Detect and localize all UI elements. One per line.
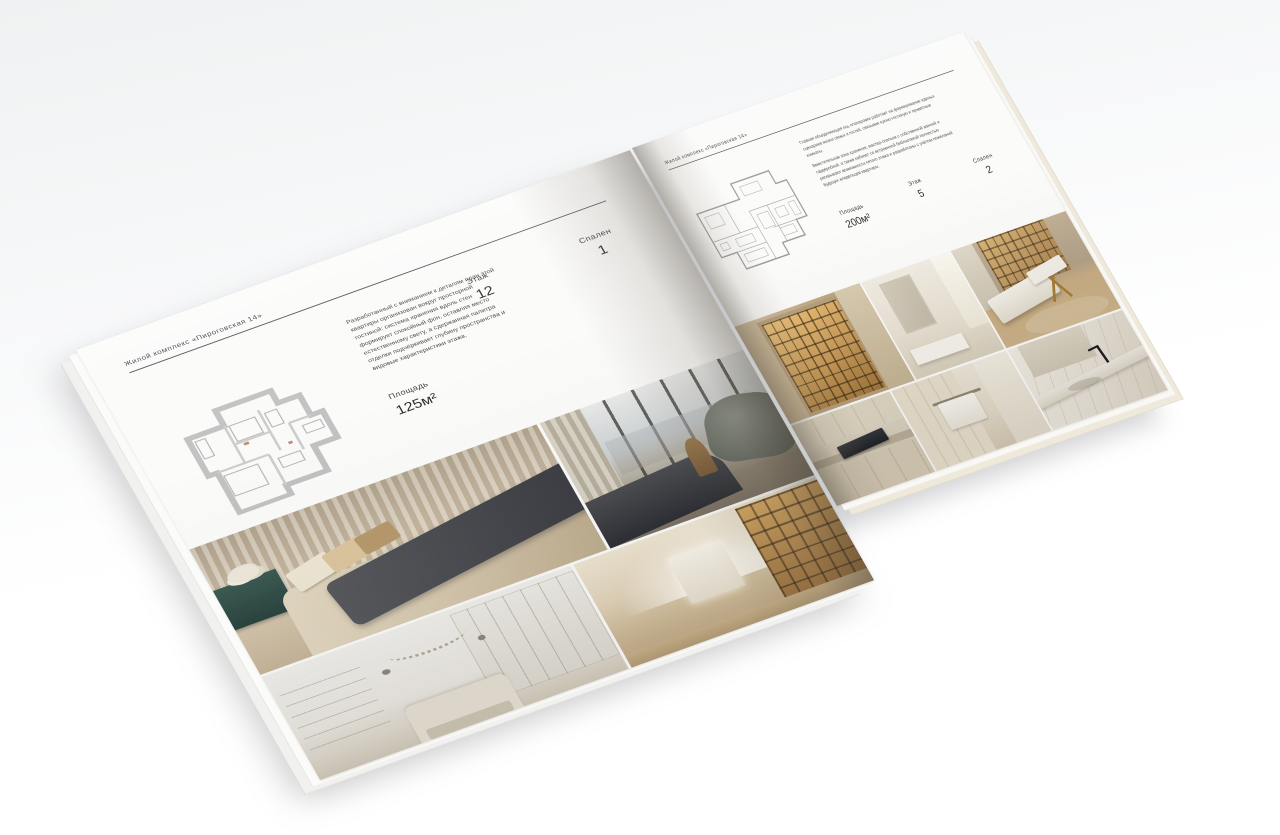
scene-background: Жилой комплекс «Пироговская 14» Разработ…	[0, 0, 1280, 835]
stat-area-right: Площадь 200м²	[838, 202, 874, 231]
sconce	[381, 669, 391, 676]
faucet	[1096, 346, 1109, 363]
floor-label: Этаж	[906, 176, 922, 187]
stat-bedrooms-left: Спален 1	[577, 226, 622, 262]
stat-bedrooms-right: Спален 2	[971, 152, 1001, 179]
floor-value: 5	[912, 186, 931, 201]
stat-area-left: Площадь 125м²	[387, 379, 441, 418]
mirror	[879, 274, 938, 334]
bedrooms-value: 2	[977, 161, 1002, 178]
wall-garland	[384, 623, 470, 666]
stat-floor-right: Этаж 5	[906, 176, 930, 201]
vanity-table	[910, 333, 970, 366]
